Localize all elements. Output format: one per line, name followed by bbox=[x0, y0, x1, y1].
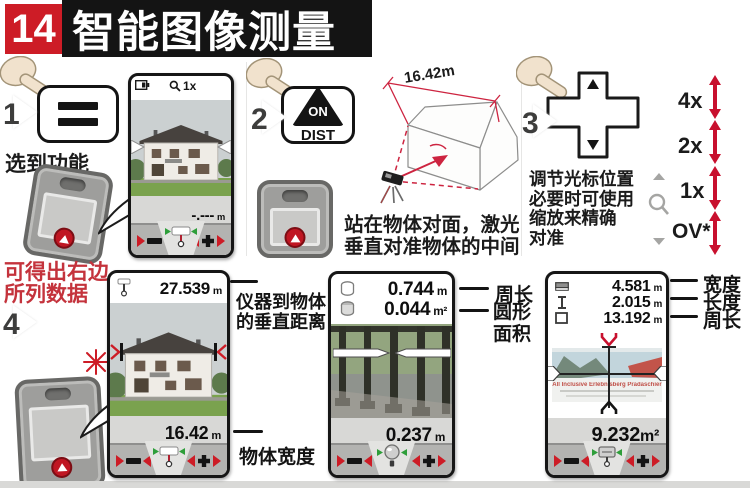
equals-icon bbox=[58, 102, 98, 110]
zoom-level-1x: 1x bbox=[680, 178, 704, 204]
lcd-screen-area-result: 4.581m 2.015m 13.192m bbox=[545, 271, 669, 478]
zoom-level-ov: OV* bbox=[672, 220, 711, 244]
navigation-pad bbox=[545, 70, 641, 160]
width-function-mini-icon bbox=[116, 278, 132, 298]
connector-line bbox=[459, 309, 489, 312]
right-edge-pointer-icon bbox=[654, 366, 667, 381]
perimeter-value: 13.192m bbox=[603, 310, 662, 328]
length-row-icon bbox=[557, 296, 567, 309]
billboard-caption: All Inclusive Erlebnisberg Pradaschier bbox=[552, 382, 662, 388]
vertical-distance-label: 仪器到物体 的垂直距离 bbox=[236, 292, 326, 332]
up-cursor-icon bbox=[600, 401, 618, 415]
billboard-photo bbox=[552, 348, 662, 402]
device-eyelet bbox=[59, 176, 87, 192]
circle-area-label: 圆形 面积 bbox=[493, 302, 531, 346]
right-target-arrow-icon bbox=[217, 140, 231, 154]
connector-line bbox=[670, 297, 698, 300]
width-function-icon bbox=[152, 443, 186, 469]
double-arrow-icon bbox=[708, 211, 722, 255]
circle-function-icon bbox=[375, 443, 409, 469]
device-illustration bbox=[257, 180, 333, 258]
perimeter-label: 周长 bbox=[703, 306, 741, 333]
speech-tail bbox=[98, 196, 132, 236]
vertical-distance-value: 27.539m bbox=[160, 279, 222, 299]
step3-caption: 调节光标位置 必要时可使用 缩放来精确 对准 bbox=[529, 170, 634, 248]
minus-key-icon bbox=[116, 447, 151, 475]
zoom-indicator: 1x bbox=[169, 79, 196, 93]
lcd-screen-circle-result: 0.744m 0.044m² bbox=[328, 271, 455, 478]
laser-burst-icon bbox=[82, 348, 110, 376]
step-number: 2 bbox=[251, 103, 268, 137]
area-function-icon bbox=[590, 443, 624, 469]
lcd-screen-aim: 1x -.---m bbox=[128, 73, 234, 258]
lcd-screen-width-result: 27.539m 16.42m bbox=[107, 270, 230, 478]
right-edge-marker-icon bbox=[213, 343, 227, 361]
tripod-device-icon bbox=[381, 170, 404, 203]
connector-line bbox=[670, 279, 698, 282]
perimeter-row-icon bbox=[555, 312, 568, 324]
double-arrow-icon bbox=[708, 166, 722, 210]
chapter-number-badge: 14 bbox=[5, 4, 62, 54]
manual-page: 14 智能图像测量 1 选到功能 1x bbox=[0, 0, 750, 488]
plus-key-icon bbox=[626, 447, 660, 475]
width-function-icon bbox=[164, 223, 198, 249]
cylinder-icon bbox=[340, 281, 355, 297]
object-width-label: 物体宽度 bbox=[239, 442, 315, 469]
plus-key-icon bbox=[412, 447, 446, 475]
result-note: 可得出右边 所列数据 bbox=[4, 262, 109, 306]
page-bottom-strip bbox=[0, 481, 750, 488]
measurement-diagram bbox=[370, 60, 520, 205]
on-dist-button: ON DIST bbox=[281, 86, 355, 144]
zoom-level-2x: 2x bbox=[678, 133, 702, 159]
step-number: 3 bbox=[522, 107, 539, 141]
zoom-level-4x: 4x bbox=[678, 88, 702, 114]
minus-key-icon bbox=[554, 447, 589, 475]
house-photo bbox=[131, 100, 231, 196]
connector-line bbox=[459, 287, 489, 290]
minus-key-icon bbox=[337, 447, 372, 475]
down-cursor-icon bbox=[600, 332, 618, 346]
cylinder-filled-icon bbox=[340, 301, 355, 317]
house-photo bbox=[110, 303, 227, 416]
page-title: 智能图像测量 bbox=[62, 0, 372, 57]
step2-caption: 站在物体对面，激光 垂直对准物体的中间 bbox=[344, 214, 520, 258]
equals-button bbox=[37, 85, 119, 143]
object-width-value: 16.42m bbox=[165, 423, 221, 444]
step-number: 4 bbox=[3, 308, 20, 342]
connector-line bbox=[230, 280, 258, 283]
left-edge-pointer-icon bbox=[547, 366, 560, 381]
circumference-value: 0.744m bbox=[388, 279, 447, 301]
zoom-stepper-icons bbox=[648, 172, 670, 248]
step-number: 1 bbox=[3, 98, 20, 132]
right-measure-arrow-icon bbox=[395, 345, 451, 361]
plus-key-icon bbox=[187, 447, 221, 475]
magnifier-icon bbox=[169, 80, 181, 92]
left-target-arrow-icon bbox=[131, 140, 145, 154]
battery-icon bbox=[135, 80, 150, 90]
double-arrow-icon bbox=[708, 75, 722, 119]
crosshair-cap bbox=[602, 346, 616, 348]
left-edge-marker-icon bbox=[110, 343, 124, 361]
railing-photo bbox=[331, 324, 452, 418]
crosshair-horizontal bbox=[550, 373, 664, 375]
circle-area-value: 0.044m² bbox=[384, 299, 447, 321]
left-measure-arrow-icon bbox=[333, 345, 391, 361]
crosshair-vertical bbox=[608, 346, 610, 408]
connector-line bbox=[233, 430, 263, 433]
width-row-icon bbox=[555, 282, 569, 291]
on-dist-triangle-icon: ON bbox=[292, 86, 344, 126]
connector-line bbox=[670, 315, 698, 318]
double-arrow-icon bbox=[708, 120, 722, 164]
